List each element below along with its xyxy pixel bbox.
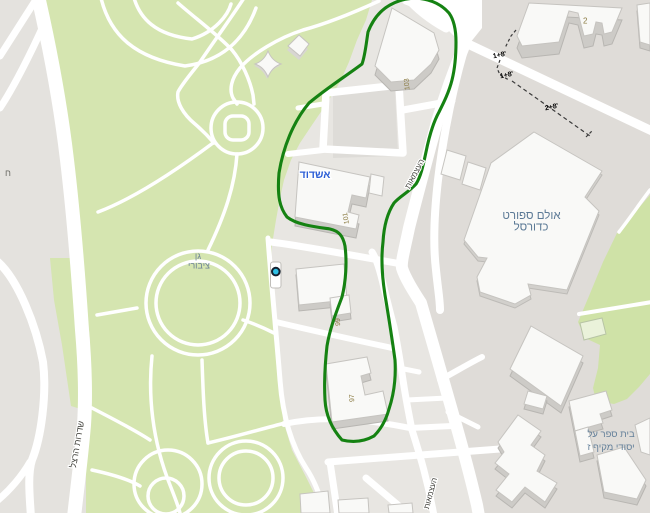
- svg-text:ציבורי: ציבורי: [188, 261, 210, 271]
- svg-text:יסודי מקיף ז: יסודי מקיף ז: [587, 442, 634, 453]
- svg-text:ח: ח: [5, 168, 11, 178]
- svg-text:97: 97: [349, 394, 356, 402]
- svg-text:אשדוד: אשדוד: [300, 169, 331, 181]
- svg-text:בית ספר על: בית ספר על: [587, 428, 635, 440]
- svg-text:103: 103: [404, 78, 412, 90]
- svg-text:2: 2: [583, 17, 588, 26]
- svg-text:כדורסל: כדורסל: [514, 221, 549, 234]
- svg-text:גן: גן: [195, 251, 201, 261]
- svg-text:אולם ספורט: אולם ספורט: [502, 209, 561, 222]
- svg-text:99: 99: [335, 318, 342, 326]
